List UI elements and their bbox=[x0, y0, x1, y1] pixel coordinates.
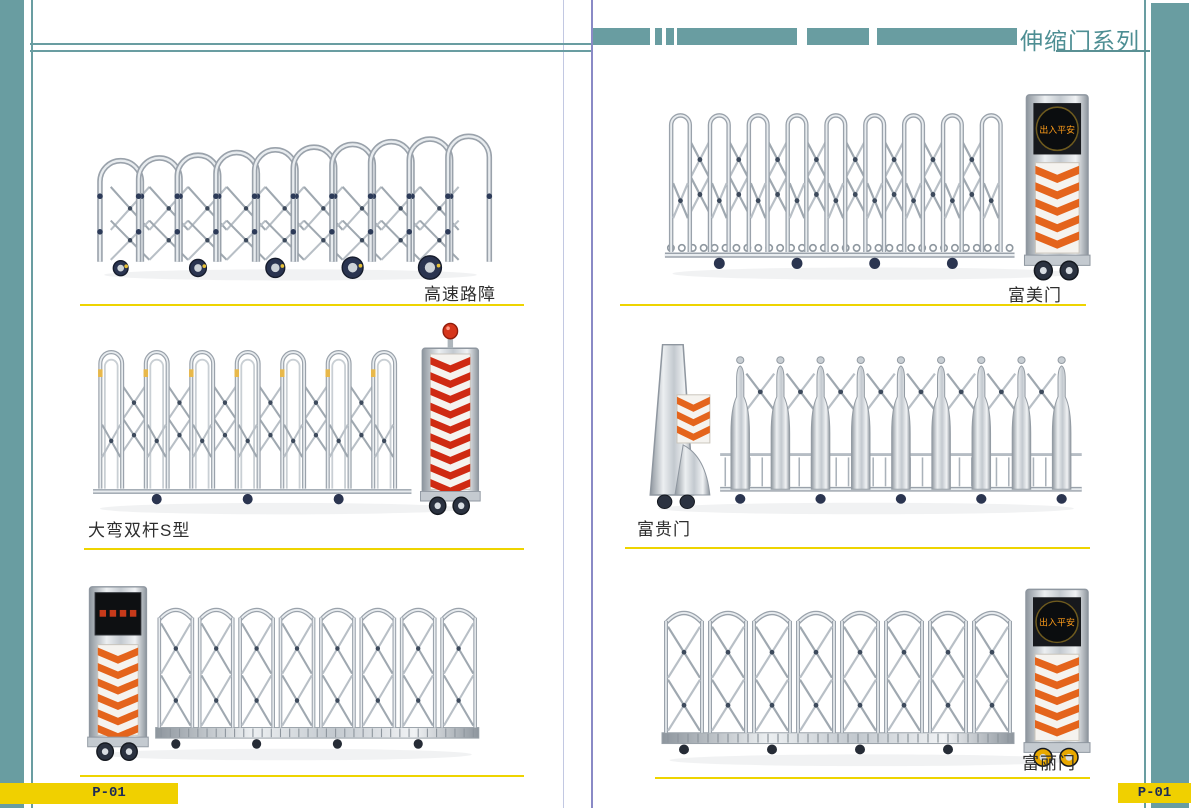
separator-line bbox=[620, 304, 1086, 306]
product-caption: 富美门 bbox=[1008, 281, 1062, 306]
gate-illustration bbox=[88, 82, 493, 288]
product-photo-fuli-gate: 出入平安 bbox=[652, 558, 1092, 774]
page-divider-rule bbox=[591, 0, 593, 808]
gate-illustration bbox=[640, 310, 1092, 522]
page-number-left: P-01 bbox=[0, 783, 178, 804]
separator-line bbox=[655, 777, 1090, 779]
left-edge-bar bbox=[0, 0, 24, 808]
right-edge-bar bbox=[1151, 3, 1189, 808]
svg-text:出入平安: 出入平安 bbox=[1039, 124, 1075, 135]
left-header-rule-bottom bbox=[30, 50, 591, 52]
page-gutter-rule bbox=[563, 0, 564, 808]
left-edge-rule bbox=[31, 0, 33, 808]
header-bar-segment bbox=[877, 28, 1017, 45]
gate-illustration: 出入平安 bbox=[652, 558, 1092, 774]
left-header-rule-top bbox=[30, 43, 591, 45]
product-photo-highway-barrier bbox=[88, 82, 493, 288]
separator-line bbox=[80, 775, 524, 777]
header-bar-segment bbox=[807, 28, 869, 45]
separator-line bbox=[625, 547, 1090, 549]
product-photo-fumei-gate: 出入平安 bbox=[655, 62, 1092, 288]
separator-line bbox=[80, 304, 524, 306]
product-photo-fugui-gate bbox=[640, 310, 1092, 522]
series-title: 伸缩门系列 bbox=[1020, 22, 1150, 50]
page-number-right: P-01 bbox=[1118, 783, 1191, 803]
product-caption: 大弯双杆S型 bbox=[88, 516, 190, 541]
gate-illustration: 出入平安 bbox=[655, 62, 1092, 288]
header-bar-segment bbox=[666, 28, 674, 45]
product-caption: 富丽门 bbox=[1022, 749, 1076, 774]
gate-illustration bbox=[84, 556, 488, 768]
product-photo-big-curve-double-rod-s bbox=[84, 312, 482, 522]
right-edge-rule bbox=[1144, 0, 1146, 808]
svg-text:出入平安: 出入平安 bbox=[1039, 617, 1075, 628]
header-bar-segment bbox=[593, 28, 650, 45]
product-caption: 富贵门 bbox=[637, 515, 691, 540]
catalog-spread: 伸缩门系列 出入平安 出入平安 高速路障 大弯双杆S型 富美门 富贵门 富丽门 … bbox=[0, 0, 1191, 808]
header-bar-segment bbox=[655, 28, 662, 45]
product-photo-unlabeled-gate bbox=[84, 556, 488, 768]
series-title-underline bbox=[1056, 50, 1150, 52]
gate-illustration bbox=[84, 312, 482, 522]
header-bar-segment bbox=[677, 28, 797, 45]
product-caption: 高速路障 bbox=[424, 280, 496, 305]
separator-line bbox=[84, 548, 524, 550]
